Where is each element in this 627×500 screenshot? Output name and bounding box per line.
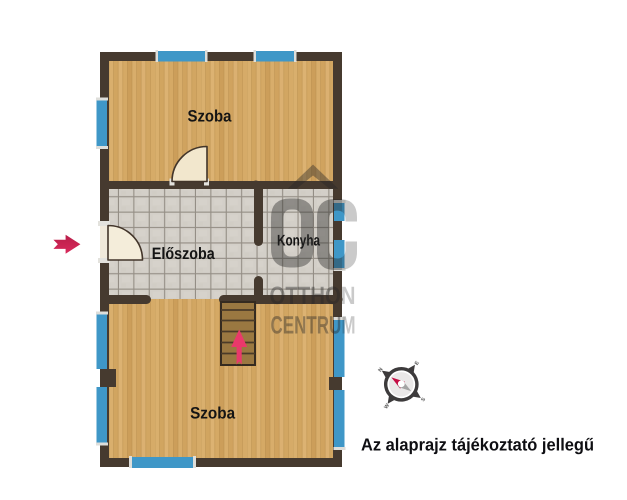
svg-text:Szoba: Szoba (188, 107, 233, 125)
svg-text:Szoba: Szoba (190, 404, 236, 422)
svg-text:Az alaprajz tájékoztató jelleg: Az alaprajz tájékoztató jellegű (361, 435, 594, 455)
svg-text:Előszoba: Előszoba (152, 245, 216, 263)
